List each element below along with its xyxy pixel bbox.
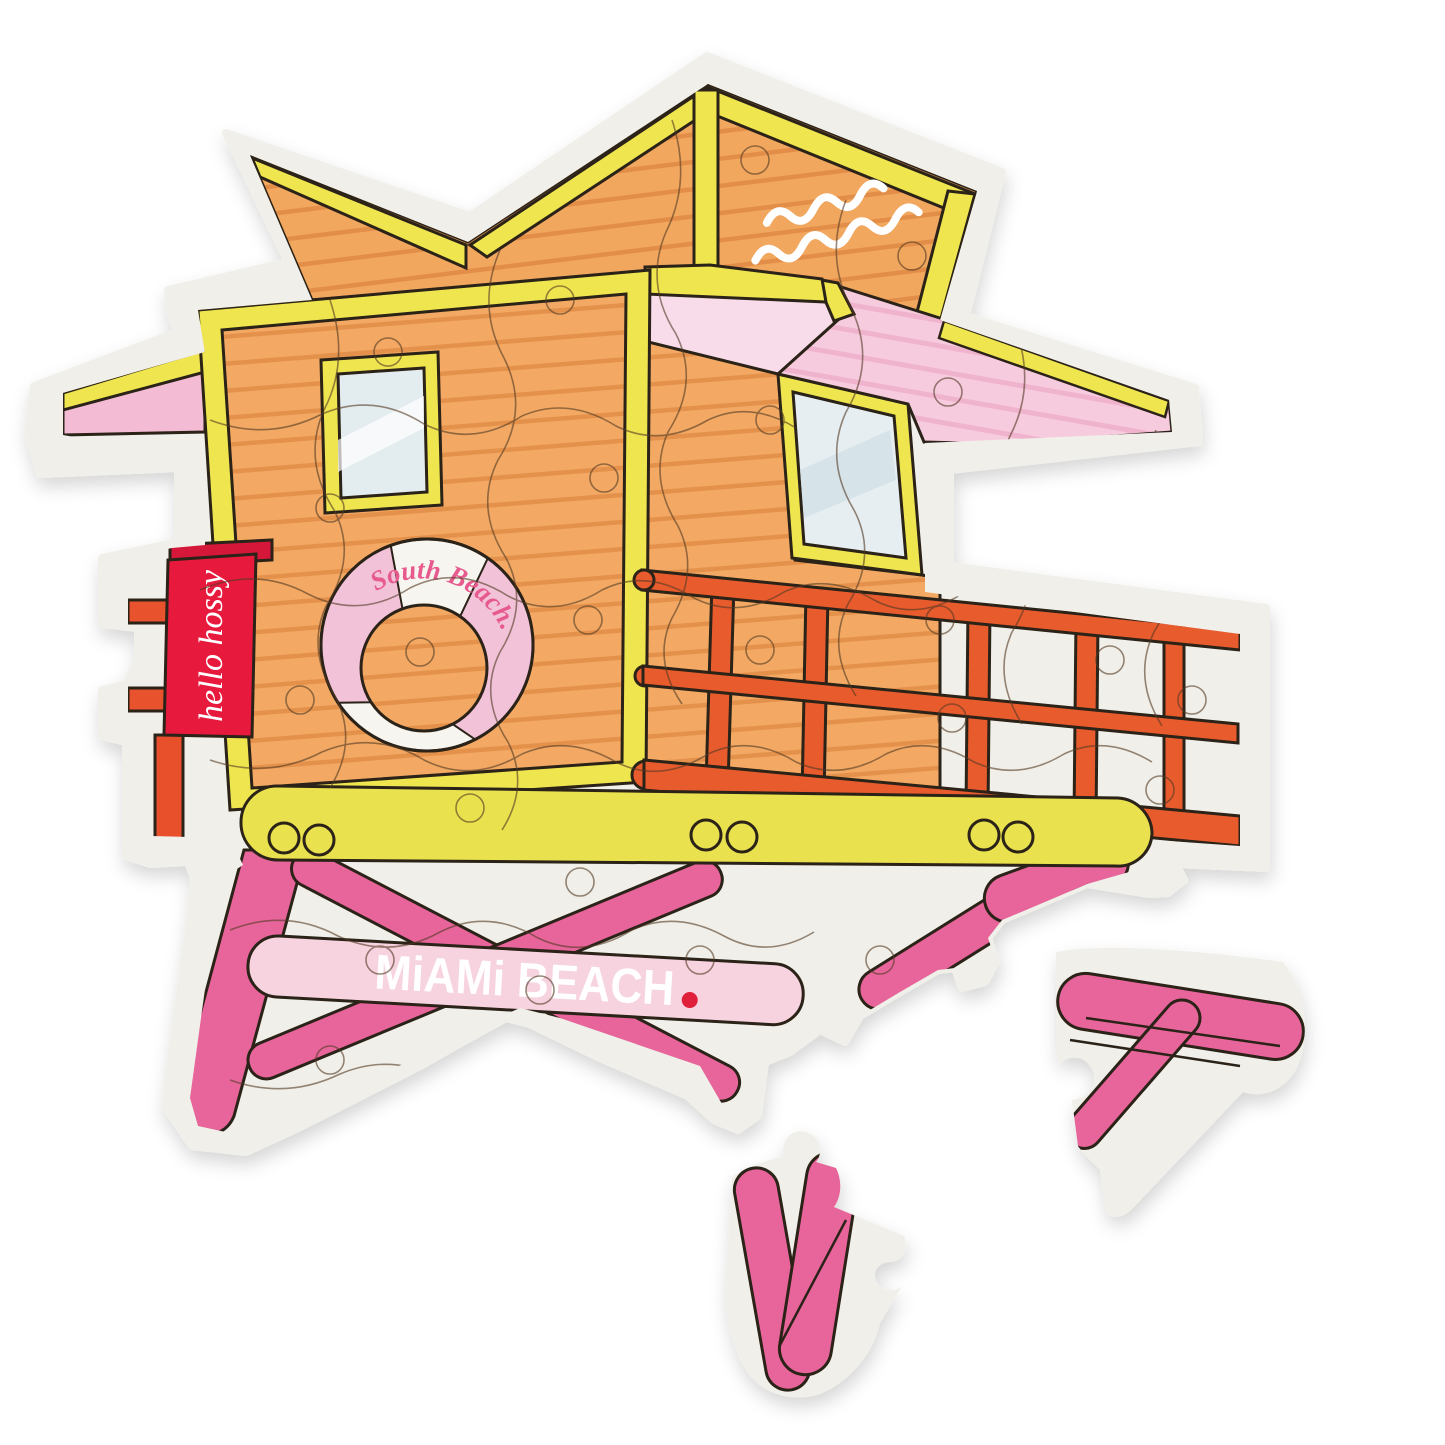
svg-text:hello hossy: hello hossy (193, 569, 230, 722)
